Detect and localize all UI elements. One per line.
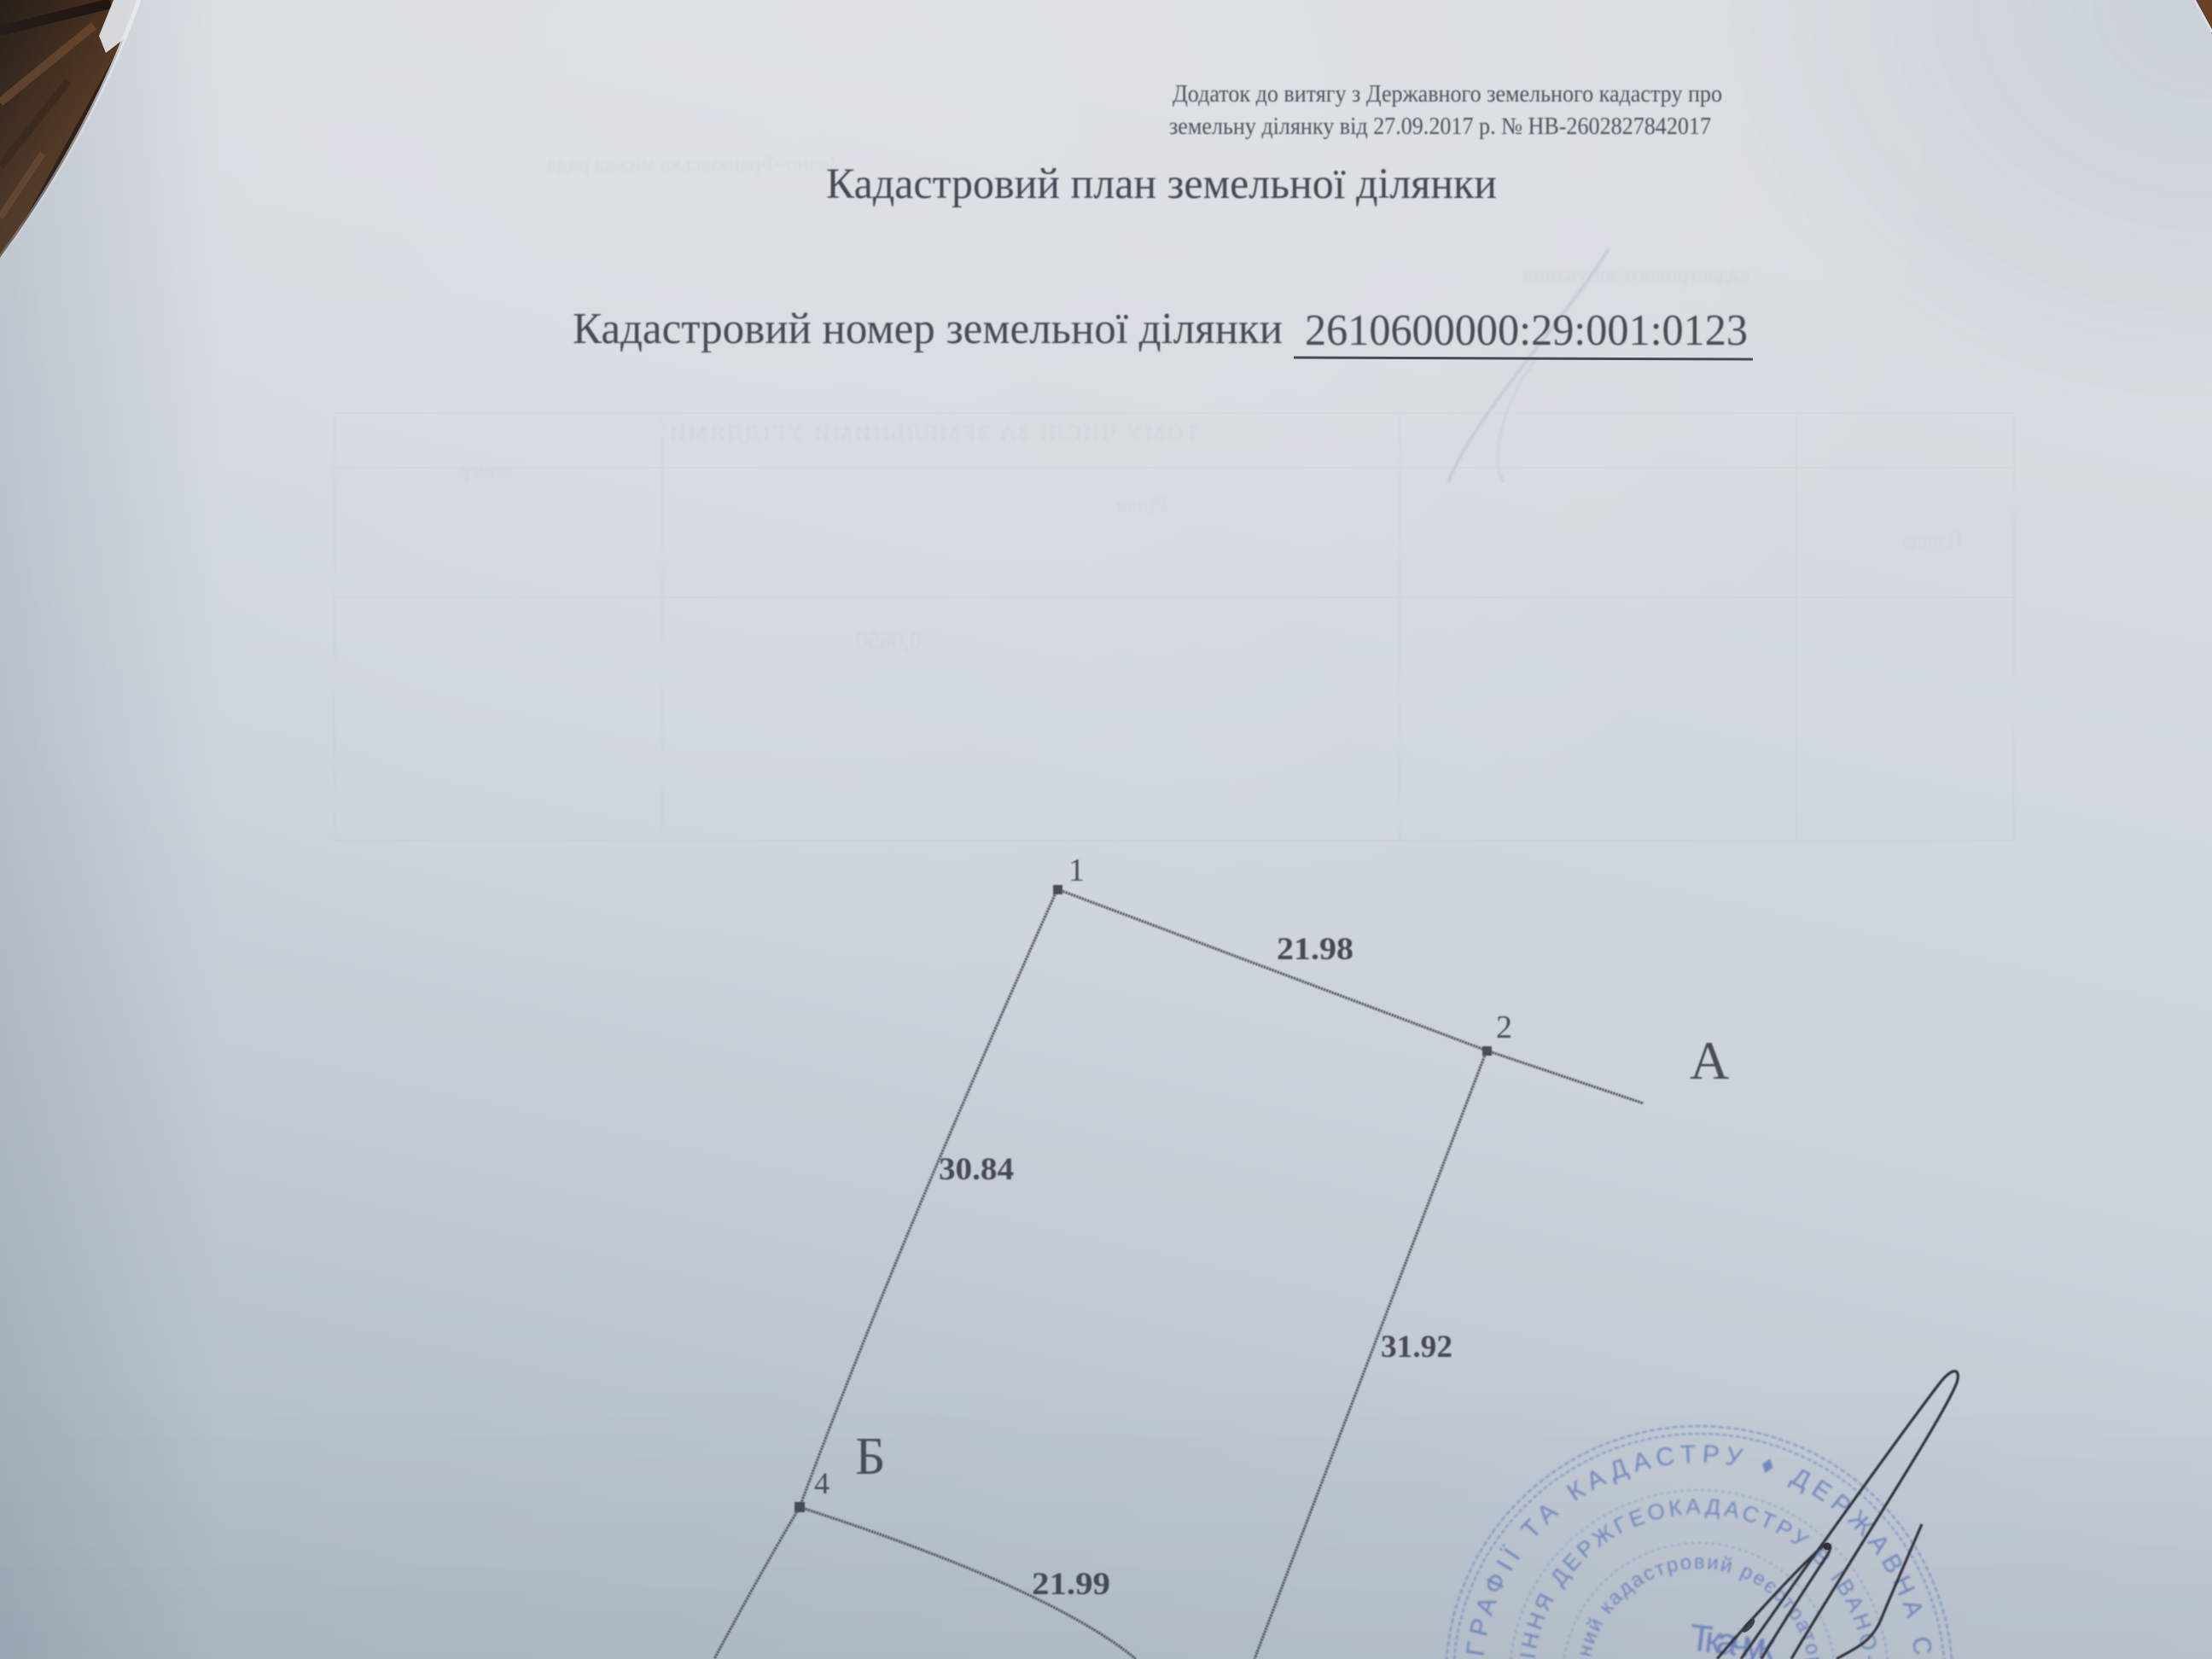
svg-text:30.84: 30.84: [939, 1152, 1014, 1187]
svg-text:0,0650: 0,0650: [856, 628, 922, 655]
svg-text:ТОМУ ЧИСЛІ ЗА ЗЕМЕЛЬНИМИ УГІДД: ТОМУ ЧИСЛІ ЗА ЗЕМЕЛЬНИМИ УГІДДЯМИ: [670, 421, 1199, 445]
svg-text:2: 2: [1496, 1010, 1512, 1045]
svg-text:31.92: 31.92: [1381, 1330, 1452, 1365]
svg-text:номер: номер: [459, 461, 512, 483]
svg-text:1: 1: [1068, 853, 1085, 888]
svg-text:Івано-Франківська міська рада: Івано-Франківська міська рада: [547, 151, 836, 176]
svg-text:А: А: [1690, 1030, 1729, 1091]
svg-text:Рілля: Рілля: [1116, 492, 1167, 517]
svg-text:Кадастровий номер земельної ді: Кадастровий номер земельної ділянки: [573, 305, 1283, 353]
svg-text:21.98: 21.98: [1277, 932, 1353, 967]
